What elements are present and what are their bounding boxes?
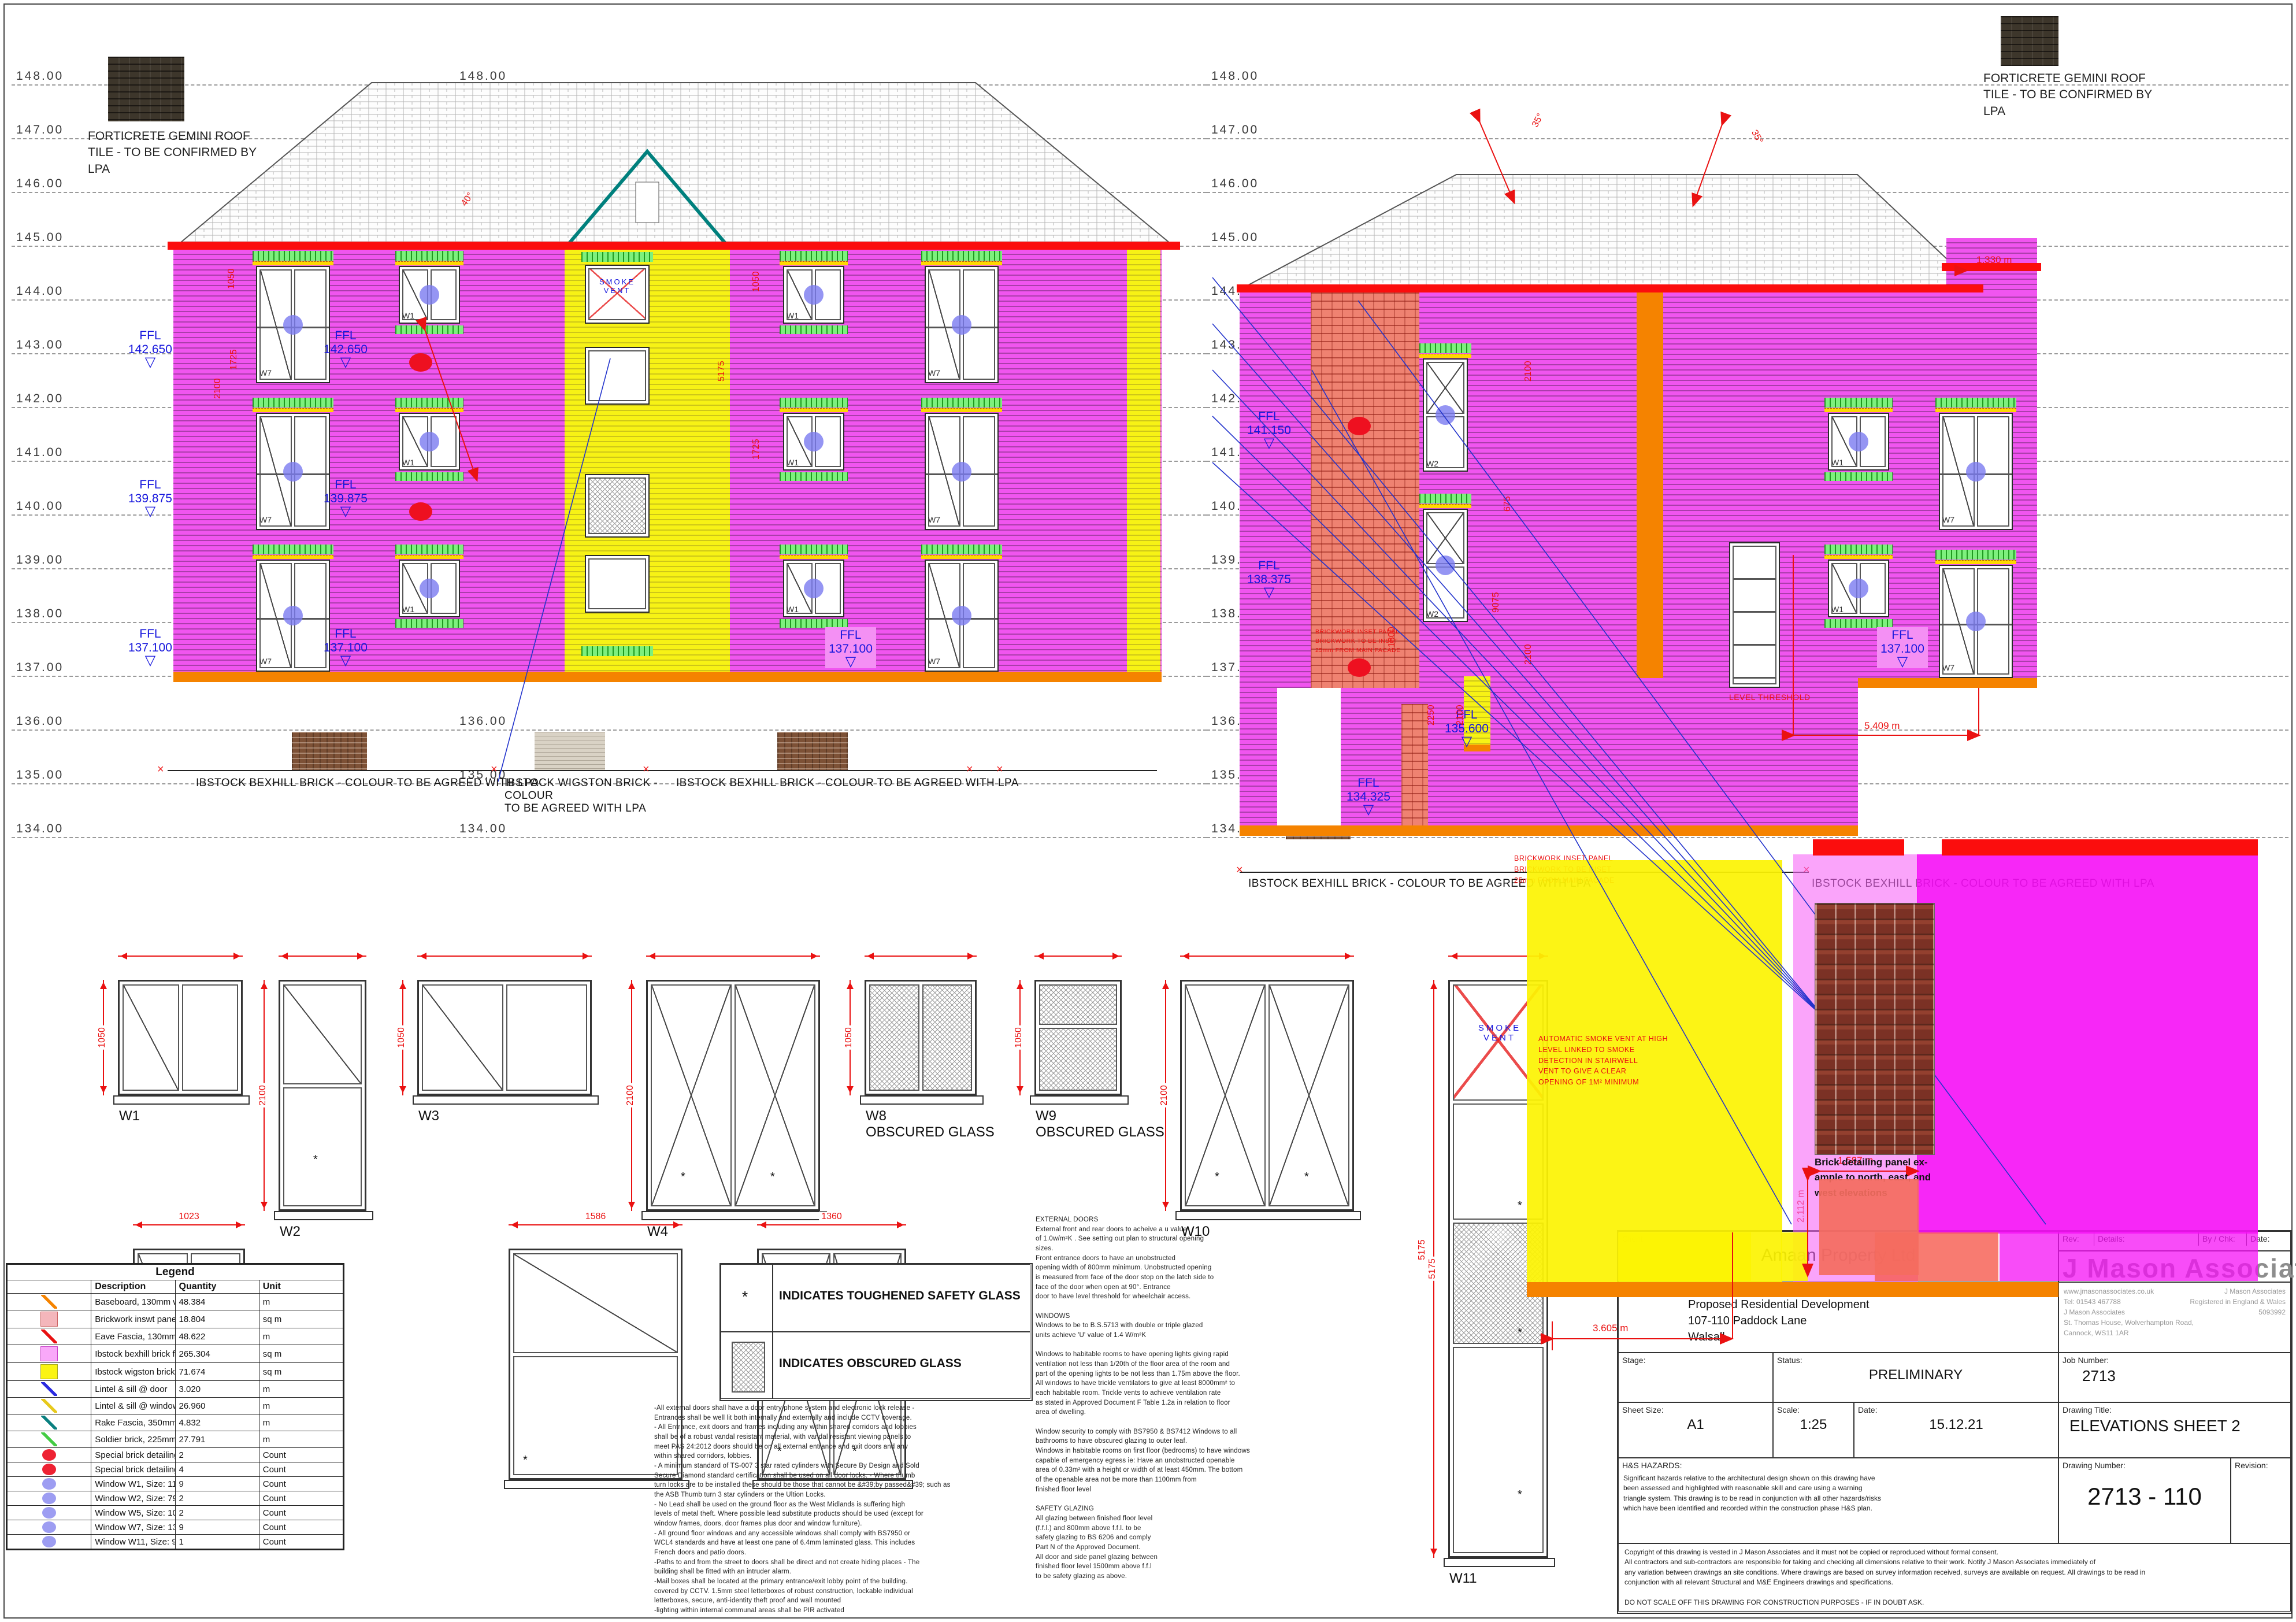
schedule-window bbox=[279, 980, 366, 1211]
obscured-key-label: INDICATES OBSCURED GLASS bbox=[773, 1332, 1030, 1395]
ffl-marker: FFL 137.100▽ bbox=[128, 627, 172, 666]
legend-swatch bbox=[8, 1520, 91, 1535]
special-brick-panel-marker bbox=[409, 502, 432, 521]
section-tick: × bbox=[996, 763, 1003, 776]
scale-label: Scale: bbox=[1774, 1403, 1853, 1417]
soldier-course bbox=[395, 398, 463, 408]
soldier-course bbox=[1935, 550, 2016, 560]
soldier-course bbox=[395, 545, 463, 554]
legend-quantity: 18.804 bbox=[175, 1310, 259, 1328]
roof-tile-swatch-right bbox=[2001, 16, 2058, 66]
legend-row: Window W7, Size: 1360mm x 2100mm9Count bbox=[8, 1520, 343, 1535]
date-label: Date: bbox=[1854, 1403, 2058, 1417]
schedule-window-sill bbox=[1030, 1095, 1129, 1105]
legend-unit: m bbox=[259, 1381, 343, 1398]
schedule-window bbox=[118, 980, 243, 1095]
legend-row: Rake Fascia, 350mm wide4.832m bbox=[8, 1414, 343, 1431]
legend-swatch bbox=[8, 1506, 91, 1520]
glass-key-box: * INDICATES TOUGHENED SAFETY GLASS INDIC… bbox=[719, 1263, 1033, 1401]
schedule-window-sill bbox=[274, 1211, 373, 1220]
toughened-glass-star: * bbox=[1518, 1488, 1522, 1502]
window-count-marker bbox=[283, 462, 303, 482]
wigston-label: IBSTOCK WIGSTON BRICK - COLOUR TO BE AGR… bbox=[505, 777, 658, 815]
window-tag: W7 bbox=[259, 368, 272, 377]
window-count-marker bbox=[952, 315, 971, 335]
toughened-key-label: INDICATES TOUGHENED SAFETY GLASS bbox=[773, 1265, 1030, 1327]
schedule-dimension: 1050 bbox=[402, 980, 403, 1095]
window-count-marker bbox=[420, 432, 439, 451]
legend-row: Special brick detailing panel (Location)… bbox=[8, 1448, 343, 1462]
window-lintel bbox=[1824, 408, 1893, 412]
legend-quantity: 265.304 bbox=[175, 1345, 259, 1363]
level-label: 145.00 bbox=[16, 231, 64, 245]
sheet-size: A1 bbox=[1619, 1417, 1772, 1433]
doors-windows-notes: EXTERNAL DOORS External front and rear d… bbox=[1036, 1215, 1278, 1582]
bexhill-label-2: IBSTOCK BEXHILL BRICK - COLOUR TO BE AGR… bbox=[676, 777, 1019, 790]
roof-tile-note-right: FORTICRETE GEMINI ROOF TILE - TO BE CONF… bbox=[1983, 71, 2180, 120]
legend-quantity: 9 bbox=[175, 1520, 259, 1535]
soldier-course bbox=[1419, 343, 1471, 353]
schedule-dimension: 1050 bbox=[1019, 980, 1021, 1095]
level-label: 138.00 bbox=[16, 607, 64, 621]
level-line bbox=[12, 837, 1207, 838]
rotated-dimension: 2250 bbox=[1426, 705, 1437, 725]
window-count-marker bbox=[283, 315, 303, 335]
soldier-course bbox=[780, 251, 848, 261]
wigston-swatch bbox=[535, 732, 605, 770]
date-value: 15.12.21 bbox=[1854, 1417, 2058, 1433]
brick-panel-extent bbox=[1819, 1179, 1919, 1275]
schedule-dimension bbox=[865, 956, 977, 957]
schedule-window-label: W1 bbox=[119, 1108, 140, 1124]
legend-quantity: 2 bbox=[175, 1448, 259, 1462]
window-sill-soldier bbox=[780, 472, 848, 481]
left-elevation-gable bbox=[565, 151, 730, 249]
schedule-window bbox=[646, 980, 820, 1211]
level-threshold-note: LEVEL THRESHOLD bbox=[1729, 691, 1811, 703]
window-tag: W1 bbox=[787, 311, 799, 320]
window-sill-soldier bbox=[395, 472, 463, 481]
schedule-dimension bbox=[1180, 956, 1354, 957]
legend-header-quantity: Quantity bbox=[175, 1280, 259, 1294]
rotated-dimension: 2100 bbox=[213, 378, 223, 399]
legend-row: Eave Fascia, 130mm wide48.622m bbox=[8, 1328, 343, 1345]
soldier-course bbox=[780, 398, 848, 408]
window-sill-soldier bbox=[395, 619, 463, 628]
level-label: 140.00 bbox=[16, 499, 64, 513]
rotated-dimension: 2100 bbox=[1455, 705, 1466, 725]
overlay-magenta-logo bbox=[2000, 1232, 2258, 1281]
special-brick-panel-marker bbox=[1348, 658, 1371, 677]
schedule-dimension: 2100 bbox=[264, 980, 265, 1211]
legend-description: Special brick detailing panel (Location)… bbox=[91, 1448, 175, 1462]
window-tag: W7 bbox=[928, 515, 940, 524]
legend-unit: Count bbox=[259, 1491, 343, 1506]
window-count-marker bbox=[1436, 405, 1455, 425]
schedule-dimension: 1050 bbox=[103, 980, 104, 1095]
legend-quantity: 48.384 bbox=[175, 1294, 259, 1310]
schedule-window-label: W2 bbox=[280, 1224, 301, 1240]
legend-quantity: 71.674 bbox=[175, 1363, 259, 1381]
window-lintel bbox=[921, 555, 1002, 559]
legend-quantity: 3.020 bbox=[175, 1381, 259, 1398]
window-tag: W1 bbox=[787, 605, 799, 614]
soldier-course bbox=[253, 251, 333, 261]
window-count-marker bbox=[420, 285, 439, 305]
window-count-marker bbox=[1966, 612, 1986, 631]
drawing-number: 2713 - 110 bbox=[2059, 1472, 2230, 1510]
section-tick: × bbox=[643, 763, 650, 776]
overlay-magenta bbox=[1917, 854, 2258, 1234]
legend-title: Legend bbox=[8, 1265, 343, 1280]
window-tag: W1 bbox=[402, 458, 414, 467]
schedule-window-sill bbox=[113, 1095, 250, 1105]
overlay-orange-bar bbox=[1527, 1282, 2058, 1297]
soldier-course bbox=[581, 646, 653, 656]
legend-swatch bbox=[8, 1535, 91, 1549]
level-label: 143.00 bbox=[16, 338, 64, 352]
overlay-yellow-client bbox=[1618, 1232, 1751, 1281]
legend-row: Window W11, Size: 910mm x 5175mm1Count bbox=[8, 1535, 343, 1549]
section-tick: × bbox=[157, 763, 164, 776]
rotated-dimension: 1725 bbox=[229, 349, 239, 370]
legend-unit: m bbox=[259, 1414, 343, 1431]
level-label: 147.00 bbox=[1211, 123, 1259, 137]
legend-row: Window W5, Size: 1023mm x 1200mm2Count bbox=[8, 1506, 343, 1520]
legend-description: Brickwork inswt panel - Brickwork to be … bbox=[91, 1310, 175, 1328]
level-label: 148.00 bbox=[1211, 69, 1259, 83]
ffl-marker: FFL 137.100▽ bbox=[1877, 627, 1928, 668]
legend-description: Eave Fascia, 130mm wide bbox=[91, 1328, 175, 1345]
legend-row: Ibstock bexhill brick finish @ exterior2… bbox=[8, 1345, 343, 1363]
legend-unit: sq m bbox=[259, 1363, 343, 1381]
overlay-red-bar-b bbox=[1942, 839, 2258, 856]
ffl-marker: FFL 138.375▽ bbox=[1247, 559, 1291, 598]
legend-swatch bbox=[8, 1462, 91, 1477]
drawing-number-label: Drawing Number: bbox=[2059, 1458, 2230, 1472]
dim-3605: 3.605 m bbox=[1593, 1323, 1628, 1334]
status-value: PRELIMINARY bbox=[1774, 1367, 2058, 1383]
legend-swatch bbox=[8, 1328, 91, 1345]
section-tick: × bbox=[491, 763, 498, 776]
legend-swatch bbox=[8, 1310, 91, 1328]
window-count-marker bbox=[1966, 462, 1986, 482]
legend-unit: Count bbox=[259, 1448, 343, 1462]
schedule-dimension: 2100 bbox=[1165, 980, 1166, 1211]
legend-description: Ibstock bexhill brick finish @ exterior bbox=[91, 1345, 175, 1363]
ffl-marker: FFL 137.100▽ bbox=[324, 627, 368, 666]
legend-description: Window W11, Size: 910mm x 5175mm bbox=[91, 1535, 175, 1549]
bexhill-label-1: IBSTOCK BEXHILL BRICK - COLOUR TO BE AGR… bbox=[196, 777, 539, 790]
window-tag: W1 bbox=[1831, 458, 1844, 467]
roof-tile-note-left: FORTICRETE GEMINI ROOF TILE - TO BE CONF… bbox=[88, 128, 296, 177]
schedule-window-label: W3 bbox=[418, 1108, 439, 1124]
bexhill-swatch-2 bbox=[777, 732, 848, 770]
schedule-dimension: 1360 bbox=[757, 1224, 906, 1225]
level-label: 134.00 bbox=[459, 822, 507, 836]
overlay-red-bar-a bbox=[1813, 839, 1904, 856]
legend-unit: m bbox=[259, 1431, 343, 1448]
legend-quantity: 9 bbox=[175, 1477, 259, 1491]
ffl-marker: FFL 134.325▽ bbox=[1347, 776, 1390, 815]
special-brick-panel-marker bbox=[1348, 417, 1371, 435]
legend-description: Lintel & sill @ door bbox=[91, 1381, 175, 1398]
project-text: Proposed Residential Development 107-110… bbox=[1619, 1297, 2058, 1345]
level-label: 146.00 bbox=[1211, 177, 1259, 191]
window-count-marker bbox=[1849, 579, 1868, 598]
stair-window bbox=[585, 474, 650, 538]
legend-swatch bbox=[8, 1414, 91, 1431]
obscured-symbol bbox=[732, 1342, 765, 1393]
window-lintel bbox=[1419, 504, 1471, 508]
ffl-marker: FFL 142.650▽ bbox=[128, 329, 172, 368]
legend-row: Soldier brick, 225mm wide27.791m bbox=[8, 1431, 343, 1448]
window-sill-soldier bbox=[1824, 472, 1893, 481]
window-tag: W2 bbox=[1426, 459, 1438, 468]
legend-unit: Count bbox=[259, 1477, 343, 1491]
legend-description: Special brick detailing panel (Location)… bbox=[91, 1462, 175, 1477]
legend-header-unit: Unit bbox=[259, 1280, 343, 1294]
level-label: 145.00 bbox=[1211, 231, 1259, 245]
level-line bbox=[1207, 837, 2288, 838]
gable-vent bbox=[636, 182, 659, 223]
window-lintel bbox=[921, 261, 1002, 265]
level-line bbox=[1207, 246, 2288, 247]
window-lintel bbox=[780, 261, 848, 265]
legend-description: Rake Fascia, 350mm wide bbox=[91, 1414, 175, 1431]
level-line bbox=[12, 729, 1207, 731]
schedule-window-label: W4 bbox=[647, 1224, 668, 1240]
left-elevation-roof bbox=[173, 83, 1177, 249]
window-lintel bbox=[1935, 560, 2016, 564]
soldier-course bbox=[253, 545, 333, 554]
legend-swatch bbox=[8, 1431, 91, 1448]
window-lintel bbox=[395, 408, 463, 412]
level-label: 146.00 bbox=[459, 177, 507, 191]
legend-description: Ibstock wigston brick finish @ exterior bbox=[91, 1363, 175, 1381]
window-tag: W7 bbox=[259, 657, 272, 666]
schedule-window-sill bbox=[413, 1095, 599, 1105]
window-tag: W7 bbox=[259, 515, 272, 524]
rotated-dimension: 2100 bbox=[1523, 361, 1534, 382]
soldier-course bbox=[921, 251, 1002, 261]
legend-swatch bbox=[8, 1294, 91, 1310]
brick-detailing-panel-photo bbox=[1815, 903, 1935, 1155]
level-line bbox=[12, 192, 1207, 193]
window-count-marker bbox=[952, 606, 971, 625]
section-tick: × bbox=[966, 763, 973, 776]
legend-unit: Count bbox=[259, 1535, 343, 1549]
schedule-dimension: 2100 bbox=[631, 980, 632, 1211]
schedule-dimension: 1586 bbox=[509, 1224, 683, 1225]
soldier-course bbox=[395, 251, 463, 261]
level-line bbox=[1207, 138, 2288, 139]
ffl-marker: FFL 142.650▽ bbox=[324, 329, 368, 368]
legend-quantity: 2 bbox=[175, 1491, 259, 1506]
legend-swatch bbox=[8, 1363, 91, 1381]
window-lintel bbox=[395, 261, 463, 265]
left-elevation-wigston-end bbox=[1127, 250, 1160, 672]
window-lintel bbox=[1935, 408, 2016, 412]
legend-row: Ibstock wigston brick finish @ exterior7… bbox=[8, 1363, 343, 1381]
level-label: 134.00 bbox=[16, 822, 64, 836]
level-line bbox=[12, 84, 1207, 86]
schedule-window-label: W8 OBSCURED GLASS bbox=[866, 1108, 995, 1140]
rotated-dimension: 5175 bbox=[1417, 1239, 1427, 1260]
stair-window bbox=[585, 555, 650, 613]
rotated-dimension: 1725 bbox=[751, 439, 762, 460]
rotated-dimension: 5175 bbox=[717, 361, 727, 382]
schedule-window bbox=[1034, 980, 1122, 1095]
legend-unit: sq m bbox=[259, 1310, 343, 1328]
schedule-window-sill bbox=[860, 1095, 984, 1105]
company-contact: www.jmasonassociates.co.uk Tel: 01543 46… bbox=[2064, 1286, 2194, 1338]
baseboard-right-high bbox=[1858, 678, 2037, 688]
schedule-window-sill bbox=[641, 1211, 827, 1220]
level-label: 148.00 bbox=[16, 69, 64, 83]
roof-tile-swatch-left bbox=[108, 57, 184, 121]
ffl-marker: FFL 139.875▽ bbox=[128, 478, 172, 517]
dim-1330: 1.330 m bbox=[1976, 254, 2012, 266]
job-number: 2713 bbox=[2059, 1367, 2290, 1385]
window-tag: W7 bbox=[928, 368, 940, 377]
level-label: 147.00 bbox=[459, 123, 507, 137]
rotated-dimension: 1050 bbox=[751, 271, 762, 292]
window-count-marker bbox=[1436, 556, 1455, 575]
schedule-dimension bbox=[118, 956, 243, 957]
smoke-vent-label: SMOKE VENT bbox=[589, 277, 645, 295]
rotated-dimension: 675 bbox=[1503, 496, 1513, 512]
scale-value: 1:25 bbox=[1774, 1417, 1853, 1433]
window-lintel bbox=[780, 408, 848, 412]
baseboard-right-low bbox=[1240, 825, 1858, 836]
window-lintel bbox=[253, 261, 333, 265]
legend-unit: sq m bbox=[259, 1345, 343, 1363]
level-label: 141.00 bbox=[16, 446, 64, 460]
window-count-marker bbox=[1849, 432, 1868, 451]
sample-line-left bbox=[168, 770, 1157, 771]
job-number-label: Job Number: bbox=[2059, 1353, 2290, 1367]
soldier-course bbox=[1935, 398, 2016, 408]
drawing-title: ELEVATIONS SHEET 2 bbox=[2059, 1417, 2290, 1435]
legend-row: Window W1, Size: 1135mm x 1050mm9Count bbox=[8, 1477, 343, 1491]
soldier-course bbox=[253, 398, 333, 408]
legend-quantity: 27.791 bbox=[175, 1431, 259, 1448]
legend-swatch bbox=[8, 1477, 91, 1491]
schedule-dimension: 1023 bbox=[133, 1224, 245, 1225]
window-tag: W1 bbox=[402, 605, 414, 614]
window-tag: W7 bbox=[928, 657, 940, 666]
level-label: 136.00 bbox=[16, 714, 64, 728]
soldier-course bbox=[1824, 398, 1893, 408]
legend-row: Special brick detailing panel (Location)… bbox=[8, 1462, 343, 1477]
legend-quantity: 48.622 bbox=[175, 1328, 259, 1345]
level-label: 135.00 bbox=[16, 768, 64, 782]
toughened-glass-star: * bbox=[1304, 1171, 1309, 1184]
window-count-marker bbox=[804, 285, 824, 305]
drawing-title-label: Drawing Title: bbox=[2059, 1403, 2290, 1417]
company-registration: J Mason Associates Registered in England… bbox=[2190, 1286, 2286, 1317]
window-count-marker bbox=[283, 606, 303, 625]
window-count-marker bbox=[952, 462, 971, 482]
window-sill-soldier bbox=[1824, 619, 1893, 628]
legend-swatch bbox=[8, 1381, 91, 1398]
eave-fascia-right bbox=[1237, 284, 1983, 292]
special-brick-panel-marker bbox=[409, 353, 432, 372]
window-sill-soldier bbox=[780, 325, 848, 334]
security-notes: -All external doors shall have a door en… bbox=[654, 1403, 1036, 1616]
rotated-dimension: 35° bbox=[1530, 112, 1546, 129]
schedule-window-label: W11 bbox=[1449, 1571, 1477, 1587]
ffl-marker: FFL 139.875▽ bbox=[324, 478, 368, 517]
smoke-vent-note: AUTOMATIC SMOKE VENT AT HIGH LEVEL LINKE… bbox=[1538, 1034, 1723, 1088]
soldier-course bbox=[921, 398, 1002, 408]
legend-unit: Count bbox=[259, 1506, 343, 1520]
ffl-marker: FFL 141.150▽ bbox=[1247, 410, 1291, 449]
window-sill-soldier bbox=[395, 325, 463, 334]
legend-swatch bbox=[8, 1448, 91, 1462]
legend-unit: m bbox=[259, 1328, 343, 1345]
window-count-marker bbox=[420, 579, 439, 598]
legend-description: Window W5, Size: 1023mm x 1200mm bbox=[91, 1506, 175, 1520]
window-lintel bbox=[253, 408, 333, 412]
ffl-marker: FFL 135.600▽ bbox=[1445, 708, 1489, 747]
toughened-glass-star: * bbox=[1518, 1327, 1522, 1340]
window-lintel bbox=[1419, 354, 1471, 358]
window-sill-soldier bbox=[780, 619, 848, 628]
rotated-dimension: 2100 bbox=[1523, 644, 1534, 665]
window-lintel bbox=[253, 555, 333, 559]
legend-swatch bbox=[8, 1398, 91, 1414]
bexhill-swatch-1 bbox=[292, 732, 367, 770]
window-lintel bbox=[921, 408, 1002, 412]
legend-unit: m bbox=[259, 1294, 343, 1310]
toughened-symbol: * bbox=[742, 1288, 748, 1306]
level-label: 136.00 bbox=[459, 714, 507, 728]
rotated-dimension: 1800 bbox=[1387, 627, 1397, 647]
level-label: 142.00 bbox=[16, 392, 64, 406]
level-label: 137.00 bbox=[16, 661, 64, 675]
legend-quantity: 26.960 bbox=[175, 1398, 259, 1414]
rotated-dimension: 40° bbox=[459, 191, 476, 208]
entrance-door bbox=[1729, 542, 1780, 688]
toughened-glass-star: * bbox=[313, 1153, 318, 1166]
soldier-course bbox=[921, 545, 1002, 554]
revision-label: Revision: bbox=[2231, 1458, 2290, 1472]
level-label: 139.00 bbox=[16, 553, 64, 567]
window-lintel bbox=[1824, 555, 1893, 559]
schedule-window-label: W9 OBSCURED GLASS bbox=[1036, 1108, 1164, 1140]
legend-unit: Count bbox=[259, 1520, 343, 1535]
level-label: 146.00 bbox=[16, 177, 64, 191]
level-label: 144.00 bbox=[16, 284, 64, 298]
soldier-course bbox=[581, 252, 653, 262]
legend-header-row: Description Quantity Unit bbox=[8, 1280, 343, 1294]
legend-row: Lintel & sill @ door3.020m bbox=[8, 1381, 343, 1398]
window-count-marker bbox=[804, 432, 824, 451]
legend-description: Lintel & sill @ window bbox=[91, 1398, 175, 1414]
schedule-window bbox=[865, 980, 977, 1095]
rotated-dimension: 1050 bbox=[227, 268, 237, 289]
lower-inset-door bbox=[1401, 704, 1428, 825]
legend-unit: Count bbox=[259, 1462, 343, 1477]
schedule-window bbox=[1180, 980, 1354, 1211]
legend-unit: m bbox=[259, 1398, 343, 1414]
rotated-dimension: 35° bbox=[1749, 128, 1764, 146]
window-tag: W1 bbox=[402, 311, 414, 320]
legend-description: Baseboard, 130mm wide bbox=[91, 1294, 175, 1310]
stage-label: Stage: bbox=[1619, 1353, 1772, 1367]
